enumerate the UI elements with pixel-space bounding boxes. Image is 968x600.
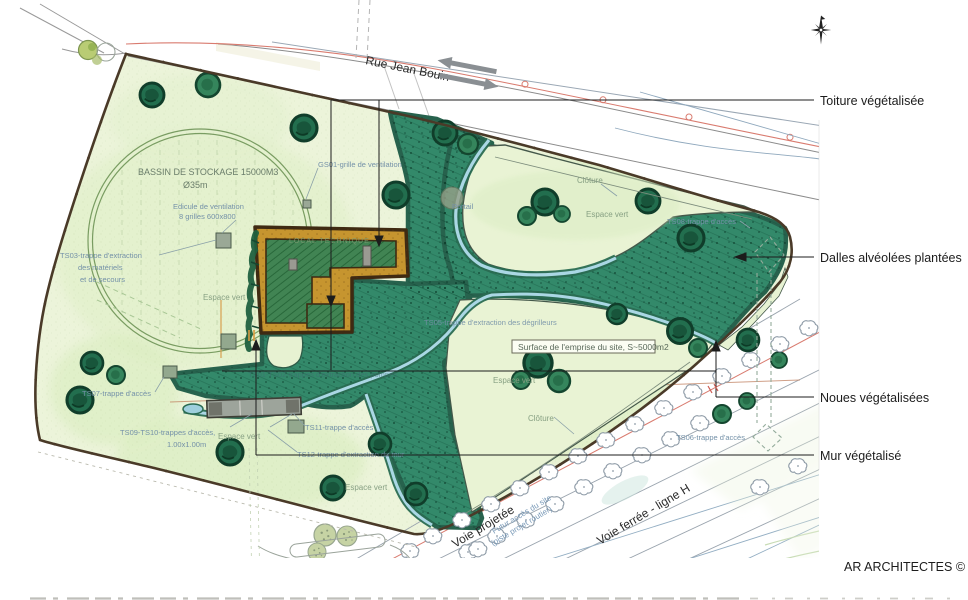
svg-text:Surface de l'emprise du site,: Surface de l'emprise du site, S~5000m2 [518, 342, 669, 352]
svg-text:TS05-trappe d'extraction des d: TS05-trappe d'extraction des dégrilleurs [424, 318, 557, 327]
svg-text:Espace vert: Espace vert [493, 376, 536, 385]
svg-text:TS11-trappe d'accès: TS11-trappe d'accès [305, 423, 374, 432]
svg-text:Espace vert: Espace vert [218, 432, 261, 441]
svg-text:Noues végétalisées: Noues végétalisées [820, 391, 929, 405]
svg-text:Ø35m: Ø35m [183, 180, 208, 190]
svg-text:LOCAL TECHNIQUE: LOCAL TECHNIQUE [289, 238, 370, 245]
svg-text:Toiture végétalisée: Toiture végétalisée [820, 94, 924, 108]
svg-text:des matériels: des matériels [78, 263, 123, 272]
svg-text:TS07-trappe d'accès: TS07-trappe d'accès [82, 389, 151, 398]
svg-text:Mur végétalisé: Mur végétalisé [820, 449, 901, 463]
svg-text:Portail: Portail [452, 202, 474, 211]
svg-text:Espace vert: Espace vert [345, 483, 388, 492]
svg-text:Dalles alvéolées plantées: Dalles alvéolées plantées [820, 251, 962, 265]
svg-text:TS06-trappe d'accès: TS06-trappe d'accès [676, 433, 745, 442]
svg-text:Clôture: Clôture [528, 414, 554, 423]
svg-text:TS03-trappe d'extraction: TS03-trappe d'extraction [60, 251, 142, 260]
svg-text:Espace vert: Espace vert [586, 210, 629, 219]
svg-text:8 grilles 600x800: 8 grilles 600x800 [179, 212, 236, 221]
svg-text:et de secours: et de secours [80, 275, 125, 284]
svg-text:TS08-trappe d'accès: TS08-trappe d'accès [667, 217, 736, 226]
svg-text:TS09-TS10-trappes d'accès,: TS09-TS10-trappes d'accès, [120, 428, 215, 437]
svg-text:Clôture: Clôture [577, 176, 603, 185]
svg-text:AR ARCHITECTES ©: AR ARCHITECTES © [844, 560, 966, 574]
svg-text:BASSIN DE STOCKAGE 15000M3: BASSIN DE STOCKAGE 15000M3 [138, 167, 278, 177]
svg-text:Espace vert: Espace vert [203, 293, 246, 302]
svg-text:Edicule de ventilation: Edicule de ventilation [173, 202, 244, 211]
svg-text:1.00x1.00m: 1.00x1.00m [167, 440, 206, 449]
